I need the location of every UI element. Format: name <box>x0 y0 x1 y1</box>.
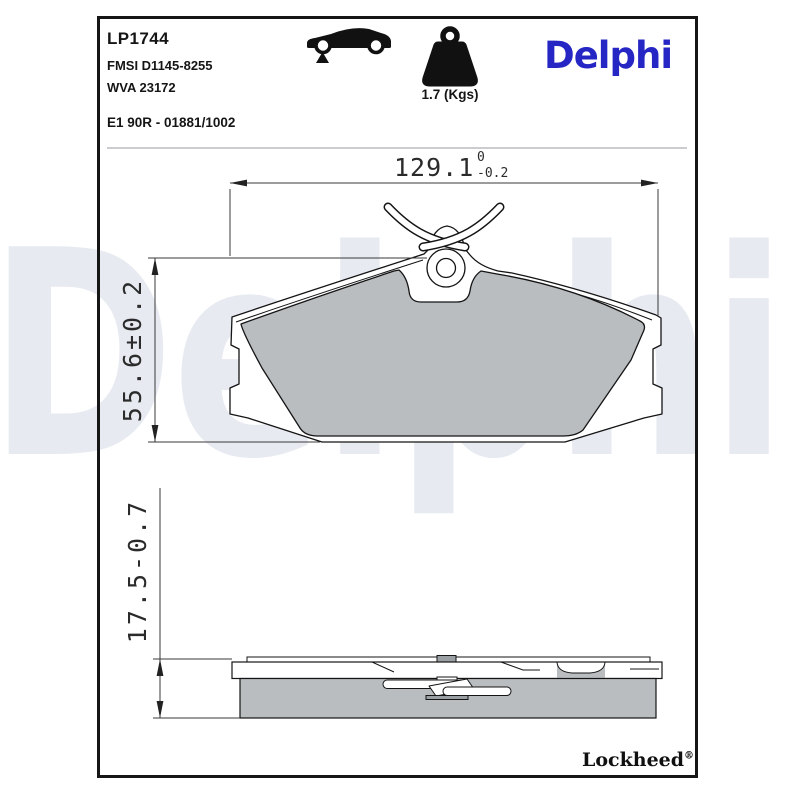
brake-pad-datasheet: { "header": { "part_number": "LP1744", "… <box>0 0 800 800</box>
page-border <box>97 16 698 778</box>
